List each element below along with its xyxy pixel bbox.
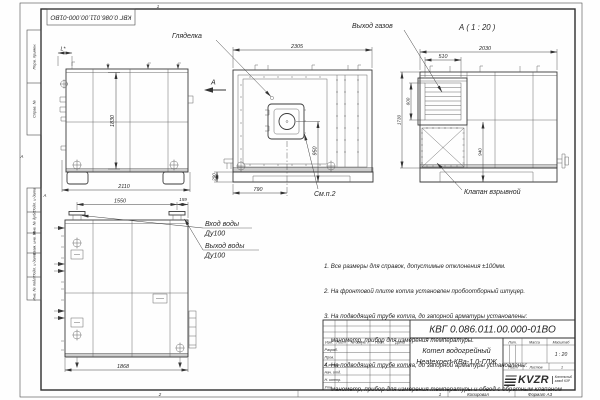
view-rear: 1550 159 1868 Вход воды Ду100 Выход воды… bbox=[54, 197, 259, 372]
zone-mark-bottom-left: 2 bbox=[158, 392, 162, 397]
dim-grille-height: 600 bbox=[406, 97, 411, 105]
section-arrow-letter: А bbox=[210, 80, 216, 87]
water-inlet-dn: Ду100 bbox=[204, 231, 225, 238]
dim-side-height: 1830 bbox=[110, 115, 116, 127]
margin-field-perv-primen: Перв. примен. bbox=[32, 44, 37, 70]
margin-field-inv-dubl: Инв. № дубл. bbox=[32, 211, 37, 235]
dim-rear-span-left: 1550 bbox=[114, 198, 126, 204]
note-line: манометр, прибор для измерения температу… bbox=[324, 337, 578, 345]
boiler-foot bbox=[67, 172, 88, 184]
dim-front-width: 2305 bbox=[290, 44, 304, 50]
side-flange bbox=[557, 154, 569, 168]
water-outlet-label: Выход воды bbox=[205, 242, 245, 250]
note-line: 3. На подводящей трубе котла, до запорно… bbox=[324, 313, 578, 321]
logo-wordmark: KVZR bbox=[518, 374, 549, 386]
manufacturer-logo: KVZR Котельный завод КЗР bbox=[505, 372, 574, 389]
note-line: 4. На подводящей трубе котла, до запорно… bbox=[324, 362, 578, 370]
dim-front-burner-axis: 950 bbox=[312, 147, 318, 156]
dim-side-l: L* bbox=[60, 47, 66, 53]
top-code-text: КВГ 0.086.011.00.000-01ВО bbox=[51, 14, 132, 21]
water-outlet-dn: Ду100 bbox=[204, 253, 225, 260]
note-line: 1. Все размеры для справок, допустимые о… bbox=[324, 263, 578, 271]
see-note-label: См.п.2 bbox=[314, 191, 336, 198]
logo-glyph-icon bbox=[504, 374, 517, 386]
logo-caption-line2: завод КЗР bbox=[555, 380, 572, 384]
boiler-foot bbox=[163, 172, 184, 184]
margin-field-podp-data-2: Подп. и дата bbox=[32, 252, 37, 277]
section-a-title: А ( 1 : 20 ) bbox=[458, 23, 496, 32]
view-section-a: А ( 1 : 20 ) 2030 510 bbox=[352, 22, 569, 196]
margin-fields: Перв. примен. Справ. № Подп. и дата Инв.… bbox=[27, 30, 41, 301]
dim-section-width: 2030 bbox=[478, 46, 491, 52]
top-code-stamp: КВГ 0.086.011.00.000-01ВО bbox=[47, 9, 135, 25]
gas-outlet-label: Выход газов bbox=[352, 22, 393, 30]
margin-field-inv-podl: Инв. № подл. bbox=[32, 276, 37, 300]
dim-section-height: 1730 bbox=[396, 114, 401, 125]
section-arrow-a: А bbox=[204, 80, 226, 93]
zone-mark-top: 1 bbox=[157, 4, 160, 9]
water-inlet-label: Вход воды bbox=[205, 220, 240, 228]
sight-glass bbox=[270, 96, 273, 99]
boiler-side-body bbox=[66, 69, 188, 172]
dim-front-base-height: 290 bbox=[211, 173, 216, 182]
view-side: L* 1830 2110 bbox=[58, 47, 193, 193]
dim-front-burner-offset: 790 bbox=[254, 187, 263, 193]
margin-field-podp-data-1: Подп. и дата bbox=[32, 187, 37, 212]
dim-grille-width: 510 bbox=[439, 54, 448, 60]
explosion-valve-label: Клапан взрывной bbox=[464, 188, 521, 196]
dim-valve-height: 940 bbox=[477, 148, 482, 156]
gas-outlet-grille bbox=[418, 78, 467, 125]
boiler-rear-body bbox=[65, 220, 188, 357]
view-front: А Гляделка См.п.2 2305 950 790 290 bbox=[172, 32, 373, 198]
zone-mark-side-outer: А bbox=[20, 154, 24, 159]
zone-mark-side-inner: А bbox=[43, 193, 47, 198]
note-line: 2. На фронтовой плите котла установлен п… bbox=[324, 288, 578, 296]
sight-glass-label: Гляделка bbox=[172, 32, 202, 40]
margin-field-vzam-inv: Взам. инв. № bbox=[32, 230, 37, 255]
explosion-valve-panel bbox=[421, 127, 465, 167]
water-inlet-callout: Вход воды Ду100 bbox=[82, 216, 252, 238]
logo-caption: Котельный завод КЗР bbox=[552, 376, 572, 384]
dim-rear-span-right: 159 bbox=[179, 197, 187, 202]
boiler-front-body bbox=[233, 70, 372, 172]
margin-field-sprav-no: Справ. № bbox=[32, 99, 37, 117]
dim-side-width: 2110 bbox=[117, 184, 130, 190]
burner-opening bbox=[279, 114, 295, 130]
drawing-sheet: 1 2 1 А А Копировал Формат А3 Перв. прим… bbox=[0, 0, 600, 400]
dim-rear-width: 1868 bbox=[117, 364, 129, 370]
